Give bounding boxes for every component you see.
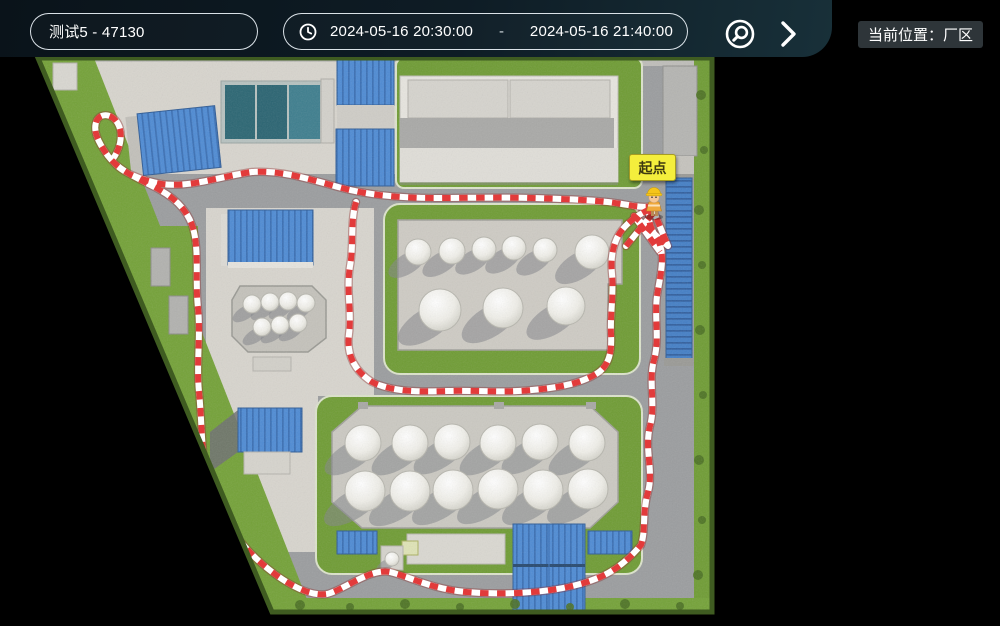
time-separator: - <box>483 23 520 40</box>
chevron-right-icon <box>775 19 801 49</box>
start-point-label: 起点 <box>629 154 676 181</box>
locate-search-icon <box>723 17 757 51</box>
current-location-chip: 当前位置：厂区 <box>858 21 983 48</box>
time-start: 2024-05-16 20:30:00 <box>330 23 473 40</box>
time-range-picker[interactable]: 2024-05-16 20:30:00 - 2024-05-16 21:40:0… <box>283 13 688 50</box>
map-ground <box>38 58 712 612</box>
app-root: 起点 测试5 - 47130 2024-05-16 20:30:00 - 202… <box>0 0 1000 626</box>
device-select-value: 测试5 - 47130 <box>49 21 145 42</box>
time-end: 2024-05-16 21:40:00 <box>530 23 673 40</box>
device-select[interactable]: 测试5 - 47130 <box>30 13 258 50</box>
factory-map-viewport[interactable] <box>0 0 1000 626</box>
play-next-button[interactable] <box>770 16 806 52</box>
locate-search-button[interactable] <box>722 16 758 52</box>
toolbar: 测试5 - 47130 2024-05-16 20:30:00 - 2024-0… <box>0 0 1000 57</box>
current-location-text: 当前位置：厂区 <box>868 24 973 45</box>
clock-icon <box>298 22 318 42</box>
